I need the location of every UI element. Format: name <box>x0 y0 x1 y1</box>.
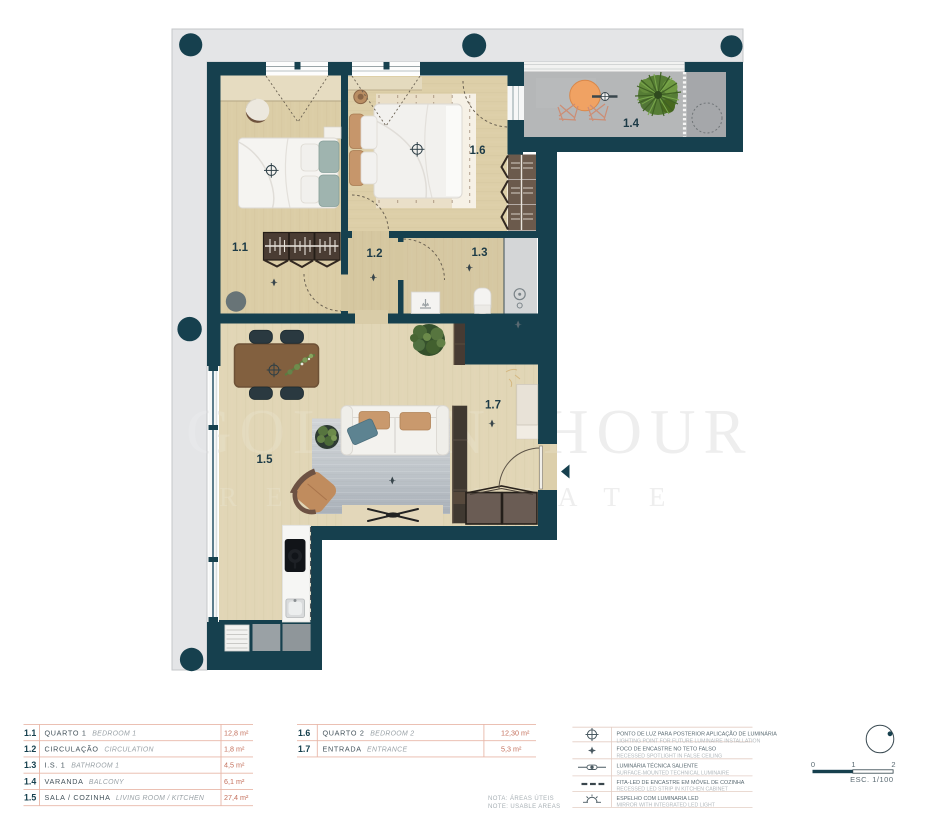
svg-text:1: 1 <box>851 760 855 769</box>
svg-text:1.6: 1.6 <box>298 728 310 738</box>
svg-text:LUMINÁRIA TÉCNICA SALIENTE: LUMINÁRIA TÉCNICA SALIENTE <box>617 763 699 770</box>
svg-text:1,8 m²: 1,8 m² <box>224 745 245 754</box>
svg-text:NOTE: USABLE AREAS: NOTE: USABLE AREAS <box>488 804 561 810</box>
svg-text:1.1: 1.1 <box>24 728 36 738</box>
svg-text:0: 0 <box>811 760 815 769</box>
svg-text:1.7: 1.7 <box>485 400 501 412</box>
svg-text:LIGHTING POINT FOR FUTURE LUMI: LIGHTING POINT FOR FUTURE LUMINAIRE INST… <box>617 738 761 744</box>
svg-text:1.4: 1.4 <box>24 777 36 787</box>
svg-text:NOTA: ÁREAS ÚTEIS: NOTA: ÁREAS ÚTEIS <box>488 795 554 802</box>
svg-text:1.4: 1.4 <box>623 118 640 130</box>
svg-text:SALA / COZINHA LIVING ROOM / K: SALA / COZINHA LIVING ROOM / KITCHEN <box>45 793 205 802</box>
svg-text:PONTO DE LUZ PARA POSTERIOR AP: PONTO DE LUZ PARA POSTERIOR APLICAÇÃO DE… <box>617 731 778 738</box>
svg-text:12,30 m²: 12,30 m² <box>501 728 530 737</box>
svg-text:FOCO DE ENCASTRE NO TETO FALSO: FOCO DE ENCASTRE NO TETO FALSO <box>617 747 717 753</box>
svg-text:6,1 m²: 6,1 m² <box>224 777 245 786</box>
svg-text:1.2: 1.2 <box>24 744 36 754</box>
svg-text:CIRCULAÇÃO CIRCULATION: CIRCULAÇÃO CIRCULATION <box>45 745 154 754</box>
svg-text:1.3: 1.3 <box>472 247 488 259</box>
svg-text:I.S. 1 BATHROOM 1: I.S. 1 BATHROOM 1 <box>45 761 120 770</box>
svg-text:RECESSED SPOTLIGHT IN FALSE CE: RECESSED SPOTLIGHT IN FALSE CEILING <box>617 753 723 759</box>
svg-text:HOUR: HOUR <box>543 397 754 467</box>
svg-text:1.2: 1.2 <box>367 248 383 260</box>
svg-text:1.1: 1.1 <box>232 242 249 254</box>
svg-text:FITA-LED DE ENCASTRE EM MÓVEL: FITA-LED DE ENCASTRE EM MÓVEL DE COZINHA <box>617 779 745 786</box>
svg-text:27,4 m²: 27,4 m² <box>224 793 249 802</box>
svg-text:5,3 m²: 5,3 m² <box>501 745 522 754</box>
svg-text:2: 2 <box>891 760 895 769</box>
svg-text:SURFACE-MOUNTED TECHNICAL LUMI: SURFACE-MOUNTED TECHNICAL LUMINAIRE <box>617 770 730 776</box>
svg-text:VARANDA BALCONY: VARANDA BALCONY <box>45 777 126 786</box>
svg-text:RECESSED LED STRIP IN KITCHEN: RECESSED LED STRIP IN KITCHEN CABINET <box>617 787 729 793</box>
svg-text:1.5: 1.5 <box>24 793 36 803</box>
svg-text:1.6: 1.6 <box>470 145 486 157</box>
svg-text:ESC. 1/100: ESC. 1/100 <box>850 775 893 784</box>
svg-text:4,5 m²: 4,5 m² <box>224 761 245 770</box>
svg-text:MIRROR WITH INTEGRATED LED LIG: MIRROR WITH INTEGRATED LED LIGHT <box>617 803 716 809</box>
svg-text:ESPELHO COM LUMINARIA LED: ESPELHO COM LUMINARIA LED <box>617 796 699 802</box>
svg-text:1.7: 1.7 <box>298 744 310 754</box>
svg-text:1.5: 1.5 <box>257 454 274 466</box>
svg-text:12,8 m²: 12,8 m² <box>224 728 249 737</box>
svg-text:1.3: 1.3 <box>24 760 36 770</box>
